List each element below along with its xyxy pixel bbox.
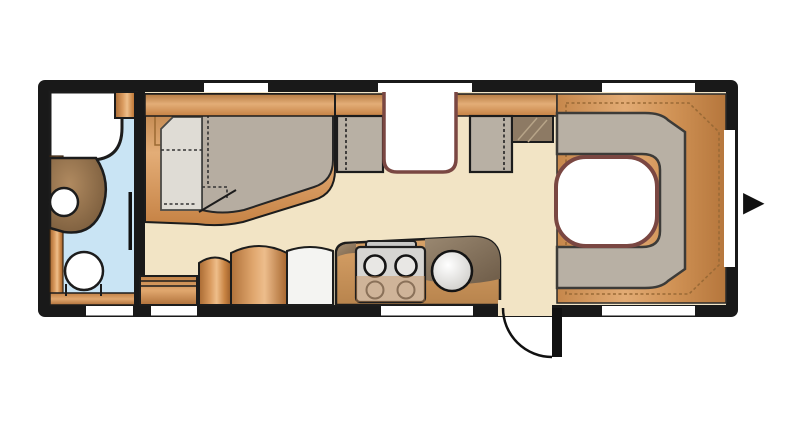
lower-sideboard — [140, 276, 197, 305]
bathroom-sliding-door — [129, 192, 133, 250]
overhead-sideboard-band — [145, 94, 557, 116]
door-leaf — [552, 308, 562, 357]
burner-top-right — [396, 256, 417, 277]
window-rear-lounge — [602, 306, 695, 316]
refrigerator — [287, 247, 333, 305]
rear-u-lounge — [556, 94, 726, 303]
dinette-bench-right — [470, 116, 512, 172]
window-front-lounge — [602, 83, 695, 92]
window-front-bed — [204, 83, 268, 92]
entry-arrow-icon: ▶ — [743, 185, 765, 218]
dinette-bench-left — [337, 116, 383, 172]
wardrobe-arched-large — [231, 246, 287, 305]
entry-door — [498, 300, 562, 357]
window-end-wall — [724, 130, 735, 267]
kitchen-sink — [432, 251, 472, 291]
window-front-dinette — [378, 83, 472, 92]
window-rear-kitchen — [381, 306, 473, 316]
shower-tray — [50, 92, 122, 160]
burner-top-left — [365, 256, 386, 277]
toilet — [65, 252, 103, 290]
stove-4-burner — [356, 241, 425, 302]
window-rear-sideboard — [151, 306, 197, 316]
window-rear-bathroom — [86, 306, 133, 316]
bathroom-wood-cabinet — [115, 92, 137, 118]
lounge-table — [556, 157, 657, 246]
wardrobe-arched-small — [199, 258, 231, 306]
bed-mattress-head-section — [161, 117, 202, 210]
caravan-floorplan: ▶ — [0, 0, 800, 445]
dinette-table — [384, 92, 456, 172]
mid-cabinet — [512, 116, 553, 142]
toilet-shelf — [50, 293, 135, 305]
bathroom-partition-wall — [134, 92, 145, 305]
door-threshold — [498, 300, 552, 316]
floorplan-canvas: ▶ — [0, 0, 800, 445]
washbasin — [50, 188, 78, 216]
